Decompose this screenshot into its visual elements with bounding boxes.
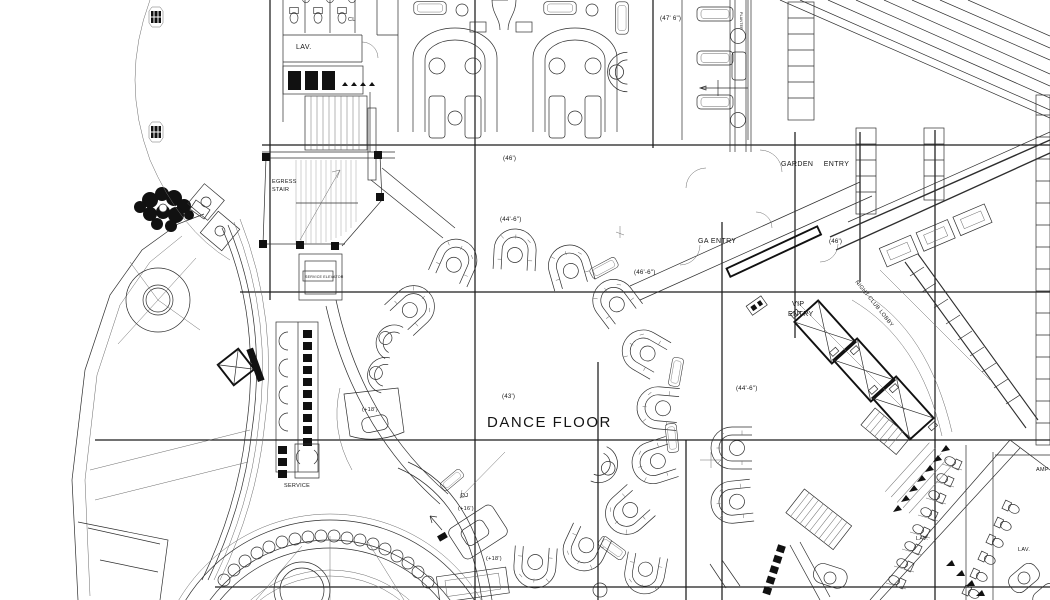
night-club-lobby-label: NIGHT CLUB LOBBY <box>853 279 894 328</box>
garden-entry-label: GARDEN ENTRY <box>781 161 849 168</box>
service-elevator-label: SERVICE ELEVATOR <box>305 275 344 279</box>
dim-plus18-bar: (+18') <box>362 407 378 413</box>
egress-label-2: STAIR <box>272 187 289 193</box>
amphitheater-label: AMP <box>1036 467 1049 473</box>
vip-entry-label-1: VIP <box>792 301 804 308</box>
vip-entry-label-2: ENTRY <box>788 311 814 318</box>
upper-lounge-booths <box>413 0 748 140</box>
west-feature-structure <box>72 184 269 600</box>
dim-47-6: (47' 6") <box>660 15 681 22</box>
egress-stair: EGRESS STAIR SERVICE ELEVATOR <box>259 151 455 300</box>
dim-46-right: (46') <box>829 238 842 245</box>
dj-label: DJ <box>461 493 468 499</box>
upper-platform: (+18') <box>337 388 404 470</box>
dim-plus16: (+16') <box>458 506 474 512</box>
dance-floor: DANCE FLOOR (43') <box>460 393 612 498</box>
service-label: SERVICE <box>284 483 310 489</box>
ga-entry-label: GA ENTRY <box>698 238 736 245</box>
dim-44-6-vip: (44'-6") <box>736 385 757 392</box>
lav-top-label: LAV. <box>296 44 312 51</box>
column-grid <box>95 0 1050 600</box>
garden-terrace-diagonals <box>686 0 1050 267</box>
dim-44-6-top: (44'-6") <box>500 216 521 223</box>
dance-floor-label: DANCE FLOOR <box>487 414 612 431</box>
grid-markers <box>135 0 230 260</box>
dim-46-top: (46') <box>503 155 516 162</box>
south-stair-bar <box>616 226 852 600</box>
service-bar: SERVICE <box>276 300 448 504</box>
restrooms-bottom-right: LAV. LAV. AMP <box>870 440 1050 600</box>
dim-plus18-dj: (+18') <box>486 556 502 562</box>
planter-label: PLANTER <box>739 12 743 30</box>
lav-right-a-label: LAV. <box>916 536 928 542</box>
scalloped-edge <box>218 530 434 588</box>
dim-46-6: (46'-6") <box>634 269 655 276</box>
dim-43: (43') <box>502 393 515 400</box>
floor-plan-drawing: LAV. CL EGRESS STAIR SERVICE ELEVATOR <box>0 0 1050 600</box>
floor-plan-sheet: LAV. CL EGRESS STAIR SERVICE ELEVATOR <box>0 0 1050 600</box>
lav-right-b-label: LAV. <box>1018 547 1030 553</box>
dance-floor-ring <box>364 228 754 597</box>
closet-label: CL <box>348 17 356 23</box>
egress-label-1: EGRESS <box>272 179 297 185</box>
entry-zone <box>630 182 1038 454</box>
